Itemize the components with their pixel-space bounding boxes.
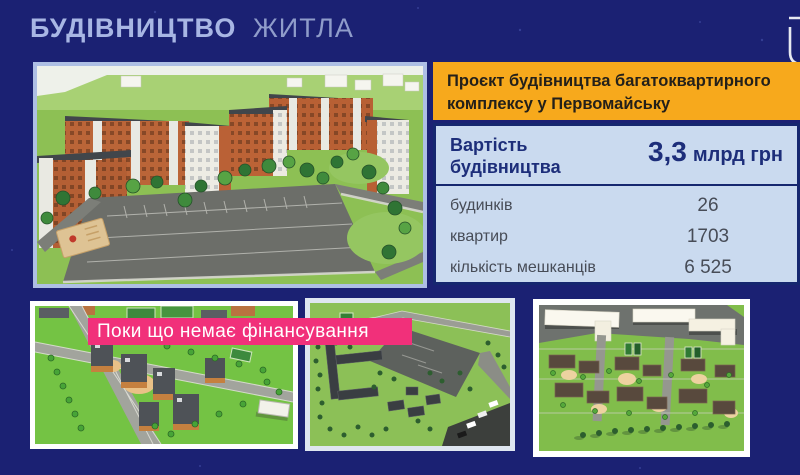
stat-label: будинків [450,197,512,215]
cost-unit: млрд грн [693,144,783,166]
stat-row-residents: кількість мешканців 6 525 [436,252,797,283]
stat-row-buildings: будинків 26 [436,190,797,221]
site-plan-right-image [539,305,744,451]
project-banner: Проєкт будівництва багатоквартирного ком… [433,62,800,120]
slide-background: БУДІВНИЦТВО ЖИТЛА [0,0,800,475]
corner-emblem-icon [786,14,800,68]
page-title-bold: БУДІВНИЦТВО [30,13,236,43]
stat-label: квартир [450,228,508,246]
stats-panel: Вартість будівництва 3,3млрд грн будинкі… [433,123,800,285]
bottom-image-right-frame [533,299,750,457]
page-title-light: ЖИТЛА [253,13,354,43]
status-banner-text: Поки що немає фінансування [97,321,369,342]
project-banner-text: Проєкт будівництва багатоквартирного ком… [447,72,771,113]
cost-label: Вартість будівництва [450,135,620,178]
status-banner: Поки що немає фінансування [88,318,412,345]
stat-value: 1703 [633,226,783,248]
main-render-frame [33,62,427,288]
stat-label: кількість мешканців [450,259,596,277]
stat-rows: будинків 26 квартир 1703 кількість мешка… [436,186,797,283]
stat-value: 6 525 [633,257,783,279]
page-title: БУДІВНИЦТВО ЖИТЛА [30,13,354,44]
stat-row-apartments: квартир 1703 [436,221,797,252]
cost-row: Вартість будівництва 3,3млрд грн [436,126,797,182]
stat-value: 26 [633,195,783,217]
cost-value-wrap: 3,3млрд грн [648,135,783,168]
cost-value: 3,3 [648,136,687,167]
main-render-image [37,66,423,284]
